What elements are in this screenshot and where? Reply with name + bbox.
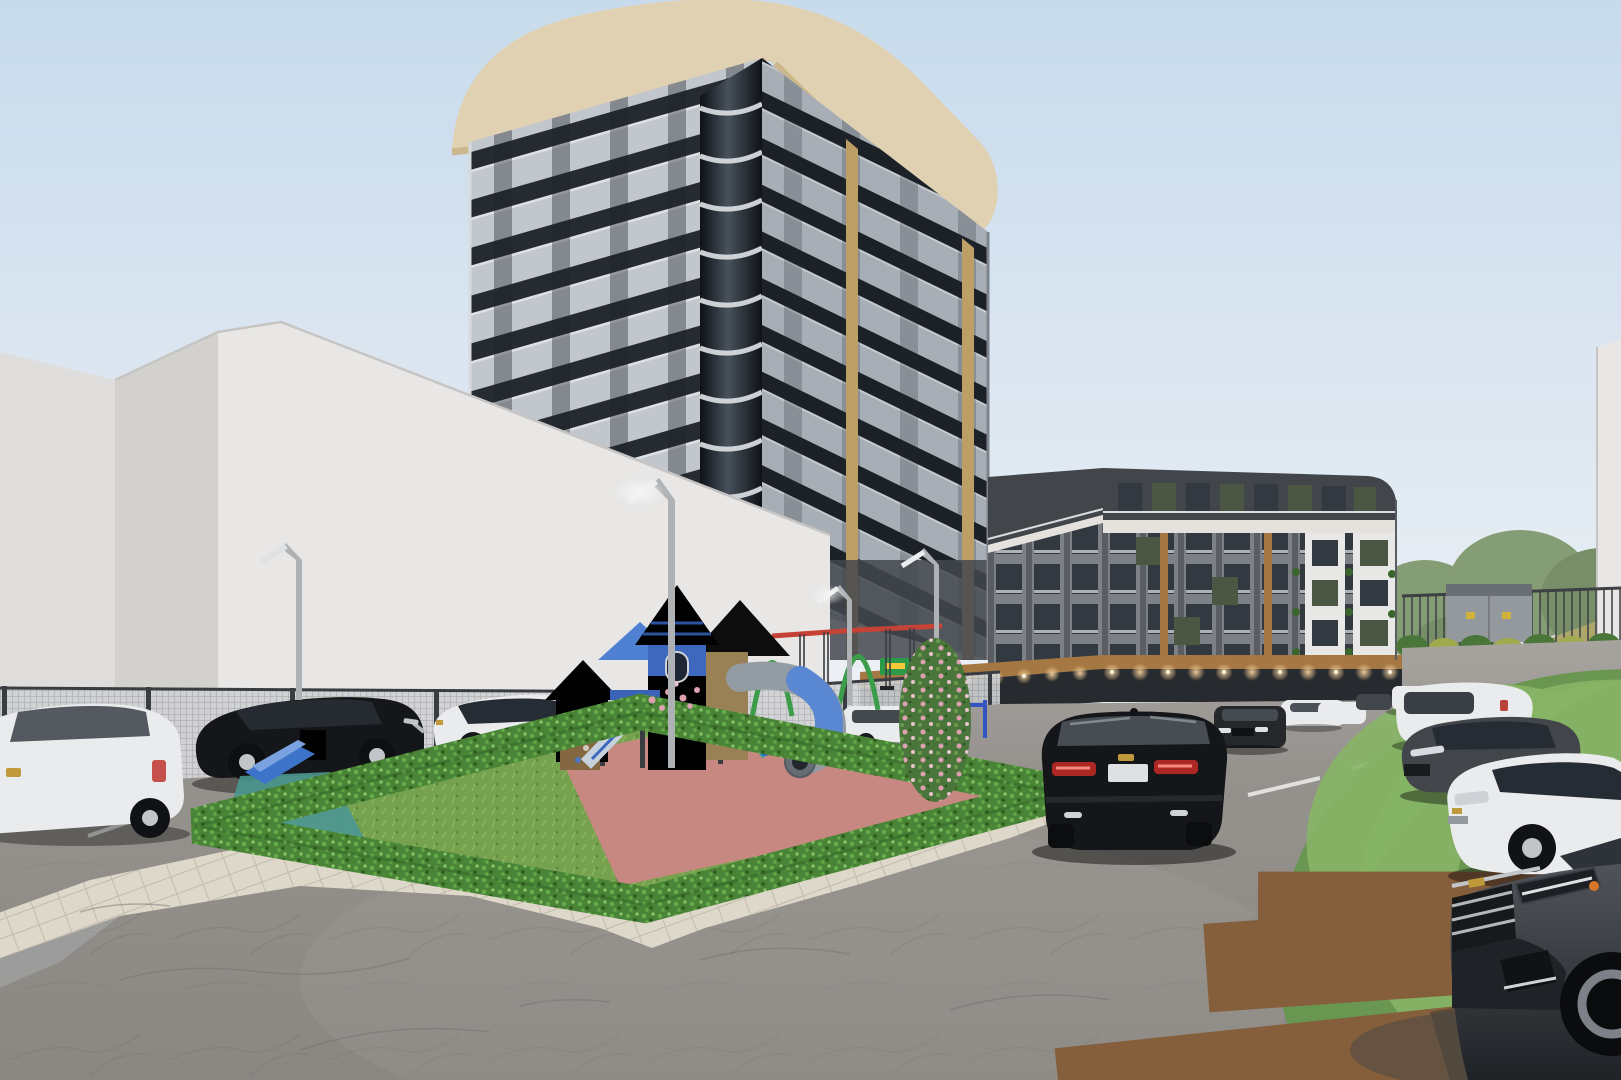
vignette xyxy=(0,0,1621,1080)
render-canvas xyxy=(0,0,1621,1080)
architectural-render xyxy=(0,0,1621,1080)
